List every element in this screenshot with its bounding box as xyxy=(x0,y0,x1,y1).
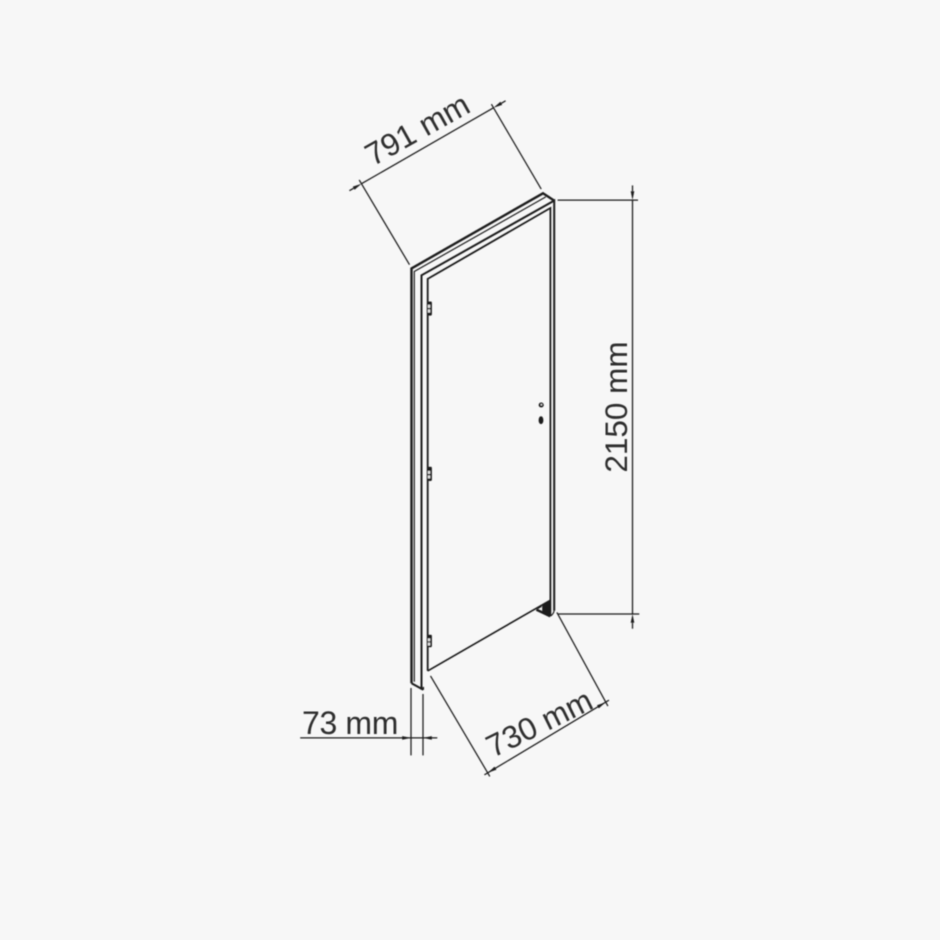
svg-text:2150 mm: 2150 mm xyxy=(598,341,634,472)
svg-text:73 mm: 73 mm xyxy=(302,705,398,741)
